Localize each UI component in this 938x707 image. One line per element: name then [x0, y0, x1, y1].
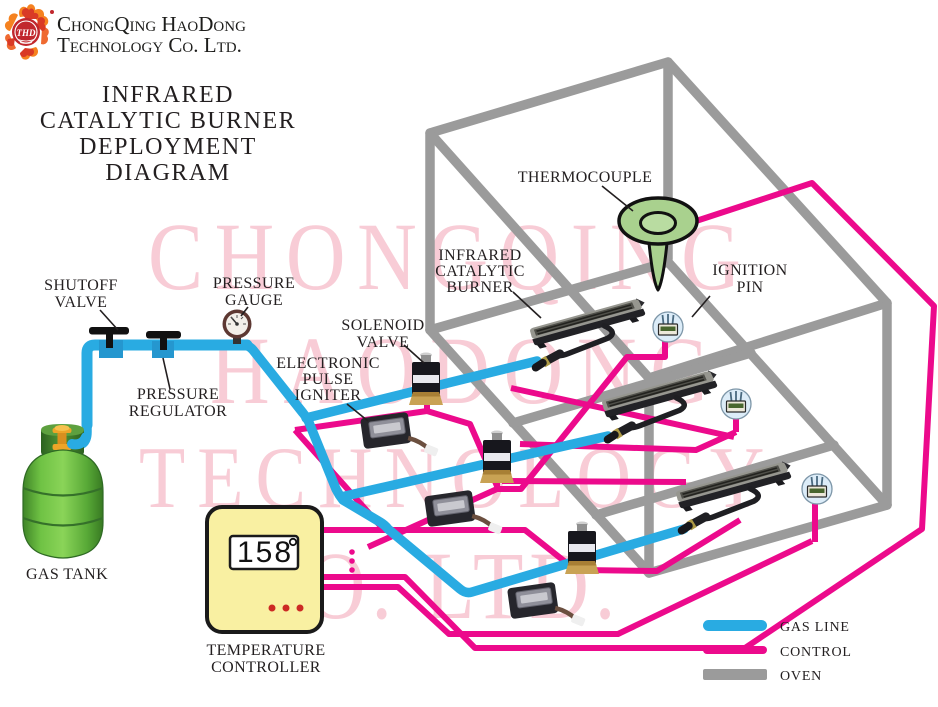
svg-text:PRESSURE: PRESSURE: [213, 275, 295, 292]
svg-text:Technology Co. Ltd.: Technology Co. Ltd.: [57, 33, 242, 57]
svg-text:IGNITION: IGNITION: [712, 262, 787, 279]
svg-text:THD: THD: [17, 28, 36, 38]
svg-text:OVEN: OVEN: [780, 669, 822, 684]
svg-text:THERMOCOUPLE: THERMOCOUPLE: [518, 169, 653, 186]
svg-text:CONTROL: CONTROL: [780, 645, 852, 660]
svg-text:BURNER: BURNER: [446, 279, 513, 296]
svg-text:DEPLOYMENT: DEPLOYMENT: [79, 134, 257, 160]
svg-text:ELECTRONIC: ELECTRONIC: [276, 355, 380, 372]
svg-text:PIN: PIN: [737, 279, 764, 296]
svg-text:GAUGE: GAUGE: [225, 292, 283, 309]
svg-text:CATALYTIC: CATALYTIC: [435, 263, 525, 280]
svg-text:PULSE: PULSE: [303, 371, 354, 388]
svg-text:CONTROLLER: CONTROLLER: [211, 659, 321, 676]
svg-text:VALVE: VALVE: [55, 294, 108, 311]
svg-text:PRESSURE: PRESSURE: [137, 386, 219, 403]
svg-text:REGULATOR: REGULATOR: [129, 403, 227, 420]
svg-text:SHUTOFF: SHUTOFF: [44, 277, 118, 294]
svg-text:VALVE: VALVE: [357, 334, 410, 351]
svg-text:SOLENOID: SOLENOID: [341, 317, 424, 334]
svg-text:CATALYTIC BURNER: CATALYTIC BURNER: [40, 108, 296, 134]
svg-text:INFRARED: INFRARED: [438, 247, 521, 264]
svg-text:INFRARED: INFRARED: [102, 82, 234, 108]
svg-text:158: 158: [237, 536, 293, 569]
svg-text:GAS LINE: GAS LINE: [780, 620, 850, 635]
svg-text:DIAGRAM: DIAGRAM: [105, 160, 230, 186]
svg-text:GAS TANK: GAS TANK: [26, 566, 108, 583]
svg-text:TEMPERATURE: TEMPERATURE: [206, 642, 325, 659]
svg-text:IGNITER: IGNITER: [295, 387, 362, 404]
